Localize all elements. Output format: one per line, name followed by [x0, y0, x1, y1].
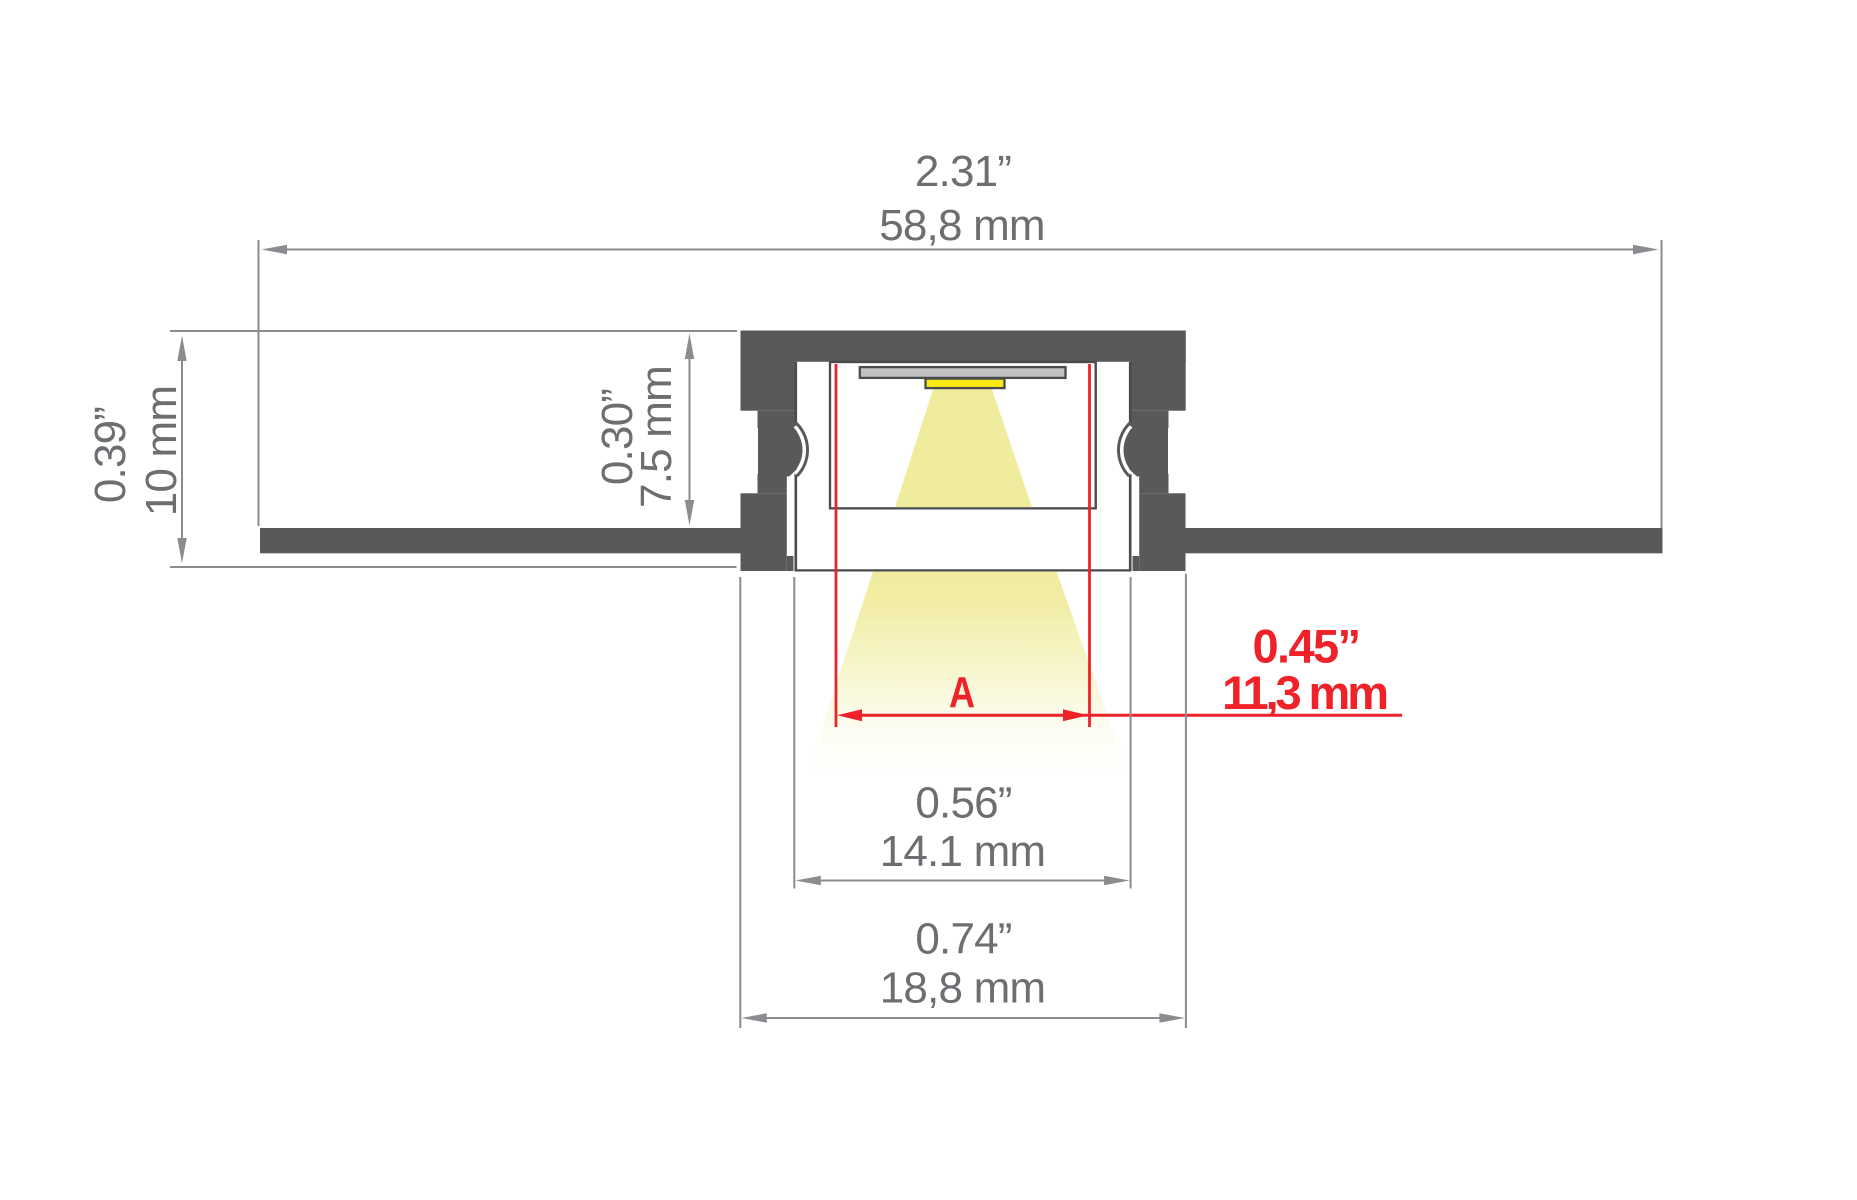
svg-text:0.39”: 0.39”	[86, 407, 135, 503]
svg-text:10 mm: 10 mm	[137, 386, 186, 516]
svg-text:58,8 mm: 58,8 mm	[879, 201, 1045, 250]
svg-text:0.56”: 0.56”	[915, 779, 1011, 828]
svg-text:7.5 mm: 7.5 mm	[632, 366, 681, 508]
svg-text:2.31”: 2.31”	[915, 147, 1011, 196]
svg-text:14.1 mm: 14.1 mm	[880, 827, 1046, 876]
svg-text:18,8 mm: 18,8 mm	[880, 964, 1046, 1013]
svg-text:0.45”: 0.45”	[1253, 620, 1360, 673]
svg-text:0.74”: 0.74”	[915, 915, 1011, 964]
svg-text:A: A	[949, 668, 975, 717]
svg-text:11,3 mm: 11,3 mm	[1222, 666, 1386, 719]
